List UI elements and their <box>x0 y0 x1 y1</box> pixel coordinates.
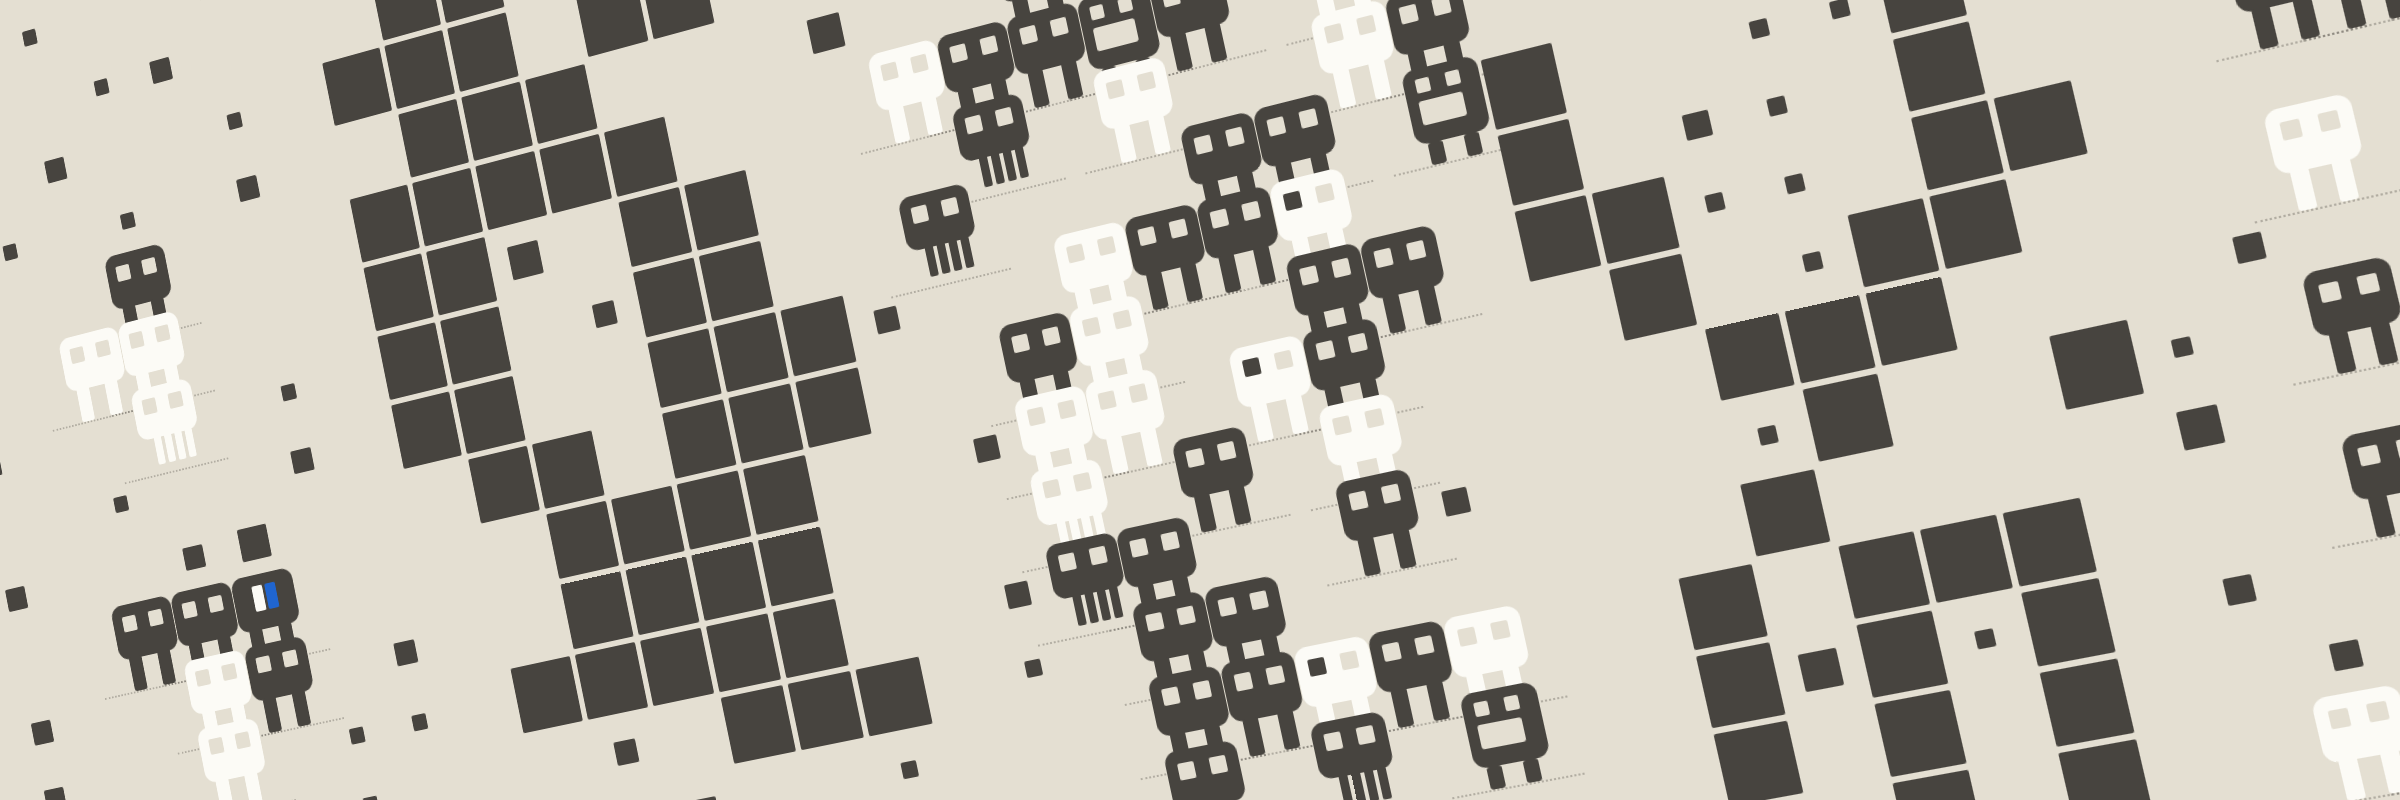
glyph-leg-left <box>1027 68 1050 108</box>
large-square <box>426 237 497 316</box>
large-square <box>350 184 420 262</box>
glyph-leg-left <box>1114 123 1137 163</box>
glyph-eye-right <box>1490 620 1511 641</box>
large-square <box>1929 179 2022 269</box>
glyph-leg-left <box>1106 434 1129 474</box>
glyph-eye-right <box>1073 472 1092 492</box>
glyph-leg-left <box>2290 167 2318 212</box>
large-square <box>412 168 483 247</box>
glyph-eye-left <box>1011 333 1030 353</box>
glyph-leg-right <box>104 379 123 416</box>
large-square <box>721 685 796 764</box>
large-square <box>640 0 714 39</box>
large-square <box>1514 195 1601 282</box>
glyph-leg-left <box>1357 536 1381 577</box>
glyph-eye-left <box>1323 731 1343 751</box>
glyph-eye-left <box>122 614 138 632</box>
glyph-leg-right <box>1368 59 1392 100</box>
glyph-eye-left <box>141 397 157 415</box>
small-square <box>1003 580 1031 609</box>
large-square <box>1856 610 1948 697</box>
glyph-leg-right <box>1418 284 1442 325</box>
glyph-eye-right <box>1217 441 1237 461</box>
small-square <box>1681 109 1713 141</box>
small-square <box>1440 486 1471 516</box>
glyph-eye-left <box>1348 490 1368 510</box>
glyph-leg-left <box>1250 402 1274 443</box>
glyph-tooth <box>184 427 197 457</box>
small-square <box>5 585 28 611</box>
large-square <box>1785 295 1876 383</box>
large-square <box>633 257 707 337</box>
large-square <box>1838 531 1930 619</box>
glyph-tooth <box>1014 146 1029 179</box>
large-square <box>758 527 834 607</box>
dot-square <box>21 28 37 47</box>
large-square <box>780 296 856 377</box>
figure-glyph-dark <box>2224 0 2335 55</box>
small-square <box>693 796 720 800</box>
glyph-leg-right <box>157 648 176 685</box>
large-square <box>691 542 766 621</box>
small-square <box>290 447 315 474</box>
glyph-eye-left <box>1242 357 1262 377</box>
glyph-eye-left <box>69 346 85 364</box>
dot-square <box>1973 628 1996 649</box>
glyph-leg-left <box>1218 253 1241 294</box>
glyph-eye-left <box>1042 479 1061 499</box>
large-square <box>377 322 448 400</box>
small-square <box>2328 639 2363 671</box>
large-square <box>1498 119 1585 206</box>
glyph-eye-left <box>1097 390 1117 410</box>
large-square <box>447 12 519 92</box>
glyph-leg-right <box>1426 680 1450 721</box>
glyph-leg-left <box>2251 5 2279 50</box>
glyph-eye-right <box>1265 665 1285 685</box>
large-square <box>706 613 781 692</box>
large-square <box>728 383 804 463</box>
large-square <box>855 657 932 737</box>
glyph-eye-right <box>1414 635 1435 655</box>
glyph-leg-right <box>2292 0 2320 40</box>
figure-glyph-dark <box>1334 468 1429 581</box>
large-square <box>532 430 605 509</box>
small-square <box>235 174 259 202</box>
glyph-eye-left <box>181 601 197 619</box>
glyph-leg-left <box>1146 270 1169 310</box>
large-square <box>1609 254 1697 341</box>
large-square <box>1847 198 1939 287</box>
glyph-eye-right <box>234 731 251 749</box>
medium-square <box>507 240 544 281</box>
glyph-leg-left <box>1194 492 1217 533</box>
glyph-eye-left <box>1315 340 1335 361</box>
large-square <box>795 367 871 448</box>
medium-square <box>806 12 845 54</box>
glyph-eye-left <box>1161 686 1181 706</box>
dot-square <box>1783 173 1805 195</box>
glyph-leg-left <box>263 696 283 733</box>
glyph-eye-right <box>1208 755 1228 775</box>
glyph-leg-left <box>2338 0 2366 29</box>
figure-glyph-skull-white <box>130 377 206 479</box>
large-square <box>2040 658 2135 747</box>
dot-square <box>1704 191 1726 212</box>
dot-square <box>119 211 135 230</box>
large-square <box>1705 313 1795 401</box>
large-square <box>454 376 526 454</box>
glyph-leg-right <box>1180 262 1203 303</box>
glyph-eye-right <box>208 595 225 613</box>
large-square <box>684 170 759 251</box>
glyph-eye-right <box>95 339 111 357</box>
glyph-tooth <box>1376 766 1392 800</box>
large-square <box>647 328 721 408</box>
glyph-eye-right <box>1249 590 1269 610</box>
large-square <box>560 571 633 649</box>
figure-glyph-dark <box>2301 255 2400 379</box>
large-square <box>510 656 582 733</box>
glyph-eye-right <box>1192 680 1212 700</box>
glyph-eye-left <box>1027 406 1046 426</box>
glyph-leg-right <box>291 690 311 727</box>
large-square <box>713 312 788 392</box>
small-square <box>613 738 639 766</box>
large-square <box>618 187 692 267</box>
dot-square <box>1765 95 1787 117</box>
glyph-leg-right <box>1140 427 1163 467</box>
glyph-leg-right <box>1148 114 1171 155</box>
glyph-eye-left <box>255 655 272 673</box>
glyph-eye-right <box>148 609 164 627</box>
glyph-leg-left <box>1486 765 1506 790</box>
glyph-leg-left <box>1382 293 1406 334</box>
glyph-eye-left <box>1457 626 1478 646</box>
large-square <box>773 599 849 679</box>
pattern-board <box>0 0 2400 800</box>
large-square <box>2003 498 2097 587</box>
large-square <box>1802 374 1893 462</box>
glyph-leg-right <box>2370 321 2398 366</box>
glyph-eye-left <box>1129 538 1149 558</box>
large-square <box>625 557 699 636</box>
glyph-eye-left <box>1473 700 1490 717</box>
glyph-leg-right <box>921 96 943 136</box>
large-square <box>1911 100 2004 190</box>
large-square <box>391 391 462 469</box>
large-square <box>677 470 752 549</box>
glyph-eye-right <box>1057 399 1076 419</box>
medium-square <box>2176 404 2226 451</box>
glyph-eye-left <box>1145 612 1165 632</box>
glyph-leg-left <box>2338 757 2366 800</box>
dot-square <box>2 243 18 261</box>
small-square <box>2222 573 2257 605</box>
dot-square <box>226 111 243 130</box>
glyph-leg-left <box>129 655 148 692</box>
small-square <box>182 544 206 571</box>
small-square <box>972 434 1000 463</box>
glyph-eye-right <box>167 391 183 409</box>
dot-square <box>2170 336 2193 358</box>
large-square <box>2021 578 2116 667</box>
figure-glyph-mouth-dark <box>1459 681 1556 794</box>
glyph-eye-left <box>208 737 225 755</box>
small-square <box>43 786 67 800</box>
large-square <box>788 671 864 750</box>
small-square <box>30 719 53 745</box>
glyph-eye-right <box>1176 605 1196 625</box>
glyph-leg-right <box>1523 758 1543 783</box>
large-square <box>1481 43 1567 130</box>
dot-square <box>411 713 428 732</box>
glyph-leg-right <box>1285 394 1309 435</box>
large-square <box>743 455 819 535</box>
dot-square <box>113 495 129 513</box>
large-square <box>1874 690 1966 777</box>
glyph-leg-right <box>1061 59 1084 99</box>
figure-glyph-white <box>2262 92 2374 216</box>
glyph-leg-left <box>76 386 95 423</box>
glyph-leg-right <box>1393 528 1417 569</box>
glyph-eye-left <box>1177 761 1197 781</box>
medium-square <box>1798 648 1845 693</box>
glyph-tooth <box>1108 586 1123 619</box>
large-square <box>662 399 737 479</box>
glyph-leg-left <box>888 104 910 144</box>
glyph-eye-left <box>1233 672 1253 692</box>
glyph-leg-right <box>2380 0 2400 19</box>
glyph-eye-left <box>1332 415 1352 436</box>
large-square <box>1920 515 2013 603</box>
large-square <box>575 0 648 57</box>
glyph-eye-right <box>1503 695 1520 712</box>
glyph-leg-right <box>244 771 264 800</box>
large-square <box>461 82 533 161</box>
large-square <box>604 117 678 197</box>
glyph-eye-right <box>1160 531 1180 551</box>
glyph-eye-right <box>1381 483 1402 504</box>
dot-square <box>1023 658 1042 678</box>
large-square <box>525 64 598 144</box>
large-square <box>611 486 685 565</box>
glyph-leg-left <box>2367 493 2395 538</box>
dot-square <box>1801 250 1823 272</box>
large-square <box>475 151 547 230</box>
large-square <box>640 628 714 706</box>
glyph-eye-right <box>282 649 299 667</box>
glyph-leg-left <box>1333 68 1357 109</box>
glyph-eye-right <box>221 663 238 681</box>
dot-square <box>1828 0 1850 19</box>
small-square <box>149 56 173 84</box>
glyph-leg-right <box>2331 158 2359 203</box>
glyph-eye-right <box>1364 408 1384 429</box>
small-square <box>44 156 68 183</box>
large-square <box>322 47 392 126</box>
small-square <box>591 300 617 328</box>
small-square <box>873 305 901 334</box>
large-square <box>398 99 469 178</box>
large-square <box>1592 177 1680 265</box>
dot-square <box>362 795 379 800</box>
large-square <box>1696 642 1786 728</box>
dot-square <box>900 760 919 779</box>
glyph-eye-right <box>1274 350 1294 370</box>
glyph-leg-left <box>2328 330 2356 375</box>
dot-square <box>93 78 109 97</box>
large-square <box>1740 469 1830 556</box>
large-square <box>1893 21 1986 112</box>
figure-glyph-white <box>2310 684 2400 800</box>
glyph-eye-right <box>2366 701 2390 723</box>
dot-square <box>280 383 297 402</box>
large-square <box>363 253 433 331</box>
glyph-leg-right <box>1253 244 1277 285</box>
large-square <box>468 446 540 524</box>
large-square <box>539 134 612 214</box>
glyph-tooth <box>960 236 975 269</box>
glyph-eye-right <box>1088 546 1107 566</box>
glyph-leg-left <box>1390 687 1414 728</box>
large-square <box>2049 320 2144 410</box>
large-square <box>2058 739 2153 800</box>
medium-square <box>237 523 272 562</box>
glyph-leg-left <box>1428 140 1448 165</box>
glyph-leg-left <box>215 778 234 800</box>
glyph-eye-left <box>1381 642 1402 662</box>
glyph-eye-left <box>2357 444 2381 466</box>
large-square <box>546 501 619 579</box>
glyph-eye-left <box>1058 552 1077 572</box>
glyph-eye-left <box>2328 708 2352 730</box>
glyph-eye-right <box>1355 725 1375 745</box>
large-square <box>1678 564 1767 650</box>
figure-glyph-dark <box>2340 419 2400 542</box>
large-square <box>699 241 774 322</box>
large-square <box>575 642 648 720</box>
dot-square <box>1748 17 1770 39</box>
glyph-eye-right <box>1339 650 1359 670</box>
large-square <box>440 306 512 384</box>
glyph-leg-left <box>1242 716 1266 757</box>
glyph-eye-left <box>1307 657 1327 677</box>
glyph-eye-left <box>1217 597 1237 617</box>
dot-square <box>1756 424 1778 445</box>
glyph-eye-left <box>1185 448 1205 468</box>
abstract-mosaic-canvas <box>0 0 2400 800</box>
glyph-leg-right <box>1228 485 1251 526</box>
small-square <box>0 452 2 479</box>
large-square <box>1994 80 2088 171</box>
glyph-leg-right <box>1204 22 1227 63</box>
large-square <box>384 30 455 109</box>
glyph-eye-right <box>1128 383 1148 403</box>
small-square <box>393 639 418 666</box>
glyph-leg-right <box>2380 749 2400 794</box>
glyph-leg-left <box>1170 31 1193 72</box>
large-square <box>1865 277 1957 366</box>
large-square <box>1714 721 1804 800</box>
glyph-leg-right <box>1277 710 1301 751</box>
dot-square <box>348 726 365 744</box>
small-square <box>2231 231 2266 264</box>
glyph-eye-left <box>195 669 211 687</box>
glyph-leg-right <box>1463 131 1483 157</box>
